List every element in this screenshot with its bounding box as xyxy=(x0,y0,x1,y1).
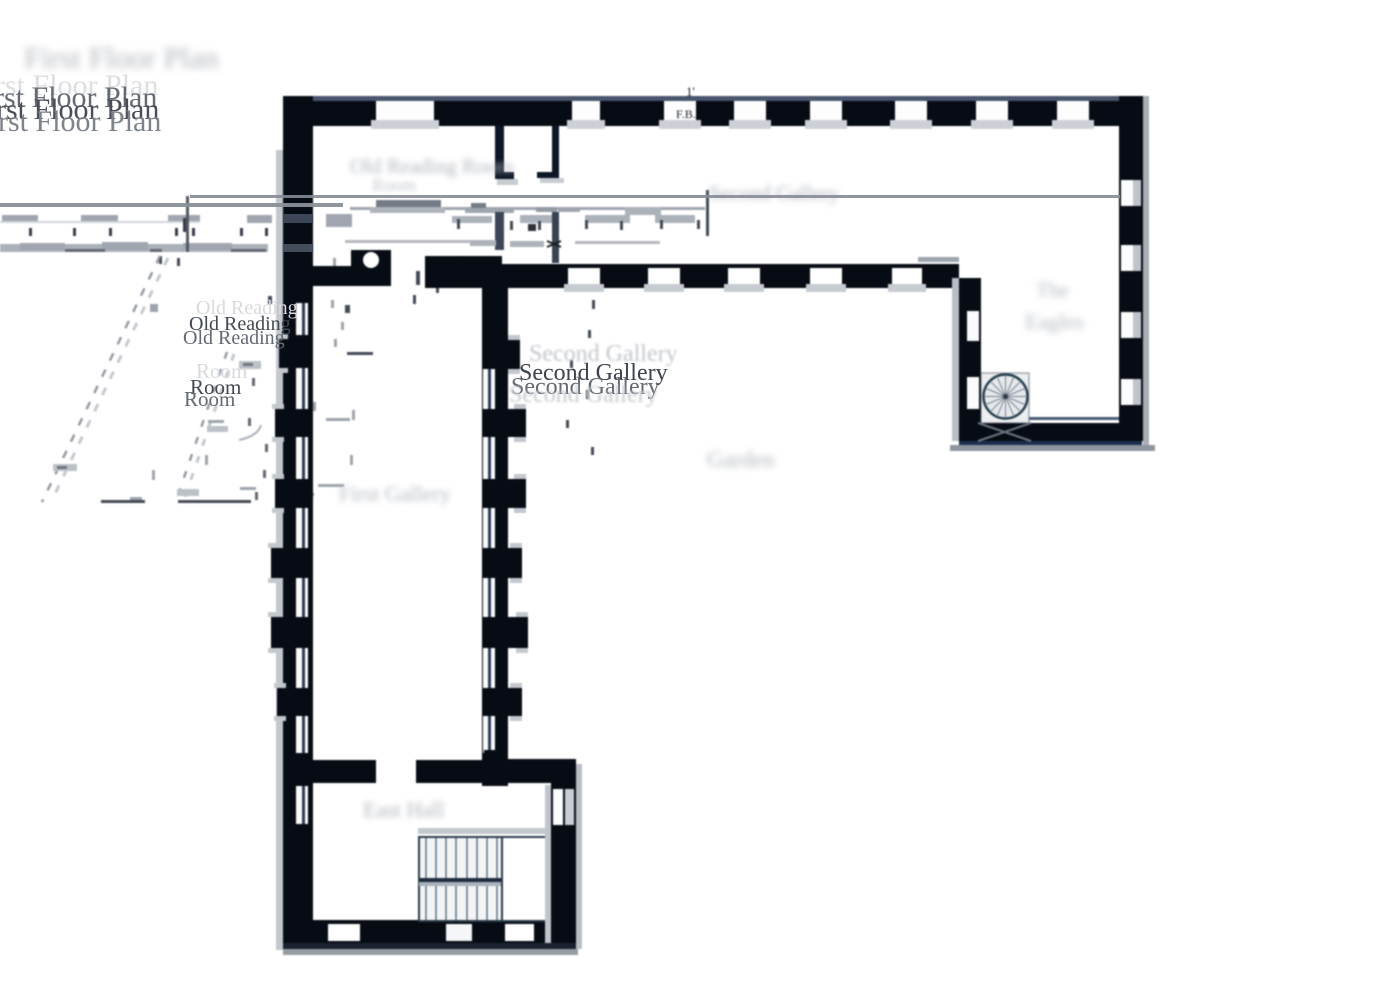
svg-text:Eagles: Eagles xyxy=(1025,309,1084,334)
svg-text:F.B.: F.B. xyxy=(676,107,696,121)
svg-text:Old Reading: Old Reading xyxy=(183,327,285,349)
svg-text:Room: Room xyxy=(372,175,416,195)
svg-text:1': 1' xyxy=(686,84,695,99)
svg-text:East Hall: East Hall xyxy=(363,797,444,822)
svg-text:First Gallery: First Gallery xyxy=(339,481,451,506)
svg-text:Second Gallery: Second Gallery xyxy=(509,382,658,408)
svg-text:Garden: Garden xyxy=(707,447,775,472)
svg-text:Second Gallery: Second Gallery xyxy=(709,181,840,205)
svg-text:Room: Room xyxy=(184,387,235,411)
svg-text:First Floor Plan: First Floor Plan xyxy=(0,105,161,138)
svg-text:The: The xyxy=(1036,278,1069,302)
